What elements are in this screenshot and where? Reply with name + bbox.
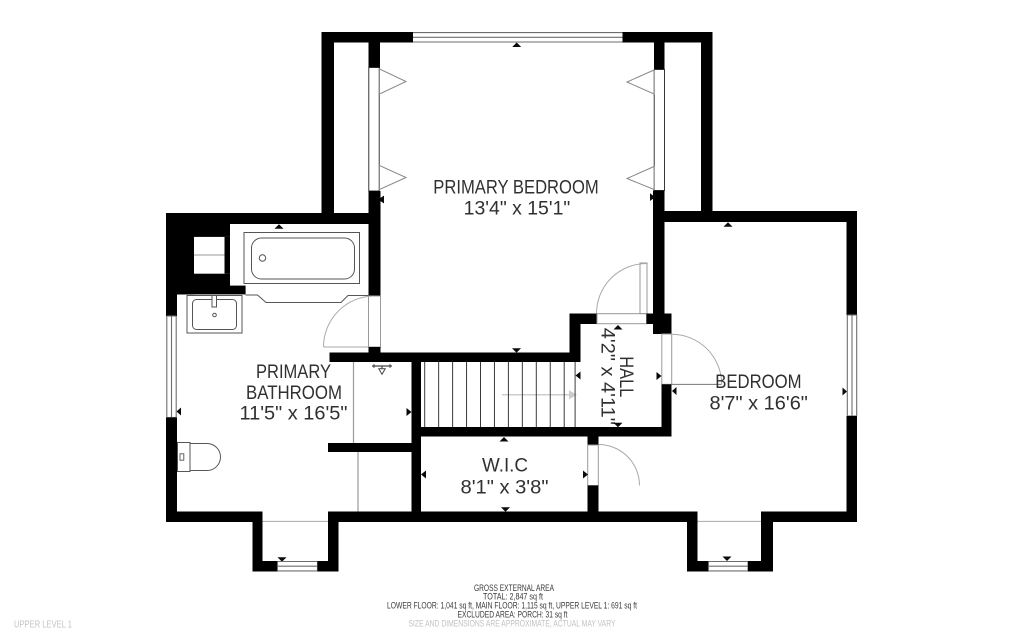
svg-text:PRIMARY BEDROOM: PRIMARY BEDROOM [433, 178, 598, 199]
svg-text:SIZE AND DIMENSIONS ARE APPROX: SIZE AND DIMENSIONS ARE APPROXIMATE, ACT… [409, 618, 616, 628]
svg-text:BEDROOM: BEDROOM [715, 372, 801, 393]
svg-text:UPPER LEVEL 1: UPPER LEVEL 1 [14, 620, 72, 631]
svg-text:8'7" x 16'6": 8'7" x 16'6" [710, 393, 808, 414]
svg-text:8'1" x 3'8": 8'1" x 3'8" [461, 478, 549, 499]
svg-text:BATHROOM: BATHROOM [246, 383, 342, 404]
svg-text:4'2" x 4'11": 4'2" x 4'11" [596, 328, 617, 425]
svg-text:W.I.C: W.I.C [482, 456, 528, 477]
svg-text:PRIMARY: PRIMARY [256, 362, 331, 383]
svg-text:11'5" x 16'5": 11'5" x 16'5" [240, 404, 348, 425]
svg-text:13'4" x 15'1": 13'4" x 15'1" [464, 199, 571, 220]
